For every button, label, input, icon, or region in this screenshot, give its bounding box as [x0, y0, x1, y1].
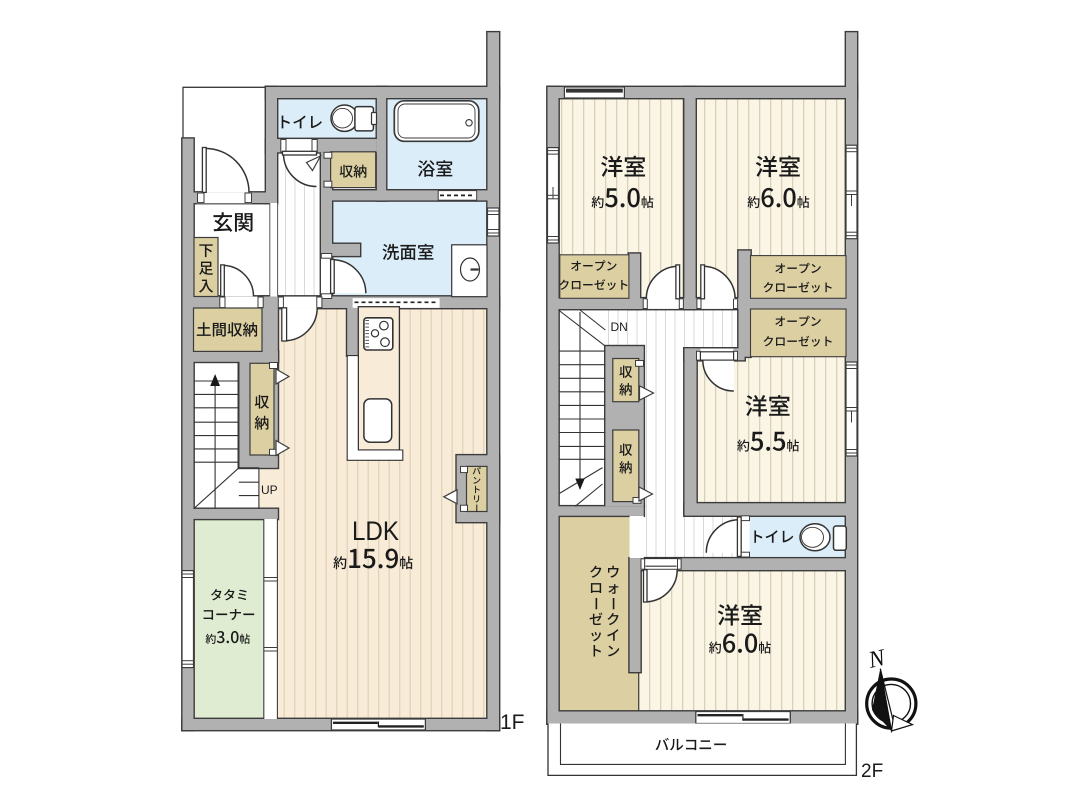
svg-text:DN: DN: [611, 320, 628, 334]
svg-text:UP: UP: [261, 483, 278, 497]
svg-text:LDK: LDK: [352, 516, 399, 546]
svg-text:2F: 2F: [861, 761, 883, 782]
svg-text:1F: 1F: [500, 711, 525, 734]
